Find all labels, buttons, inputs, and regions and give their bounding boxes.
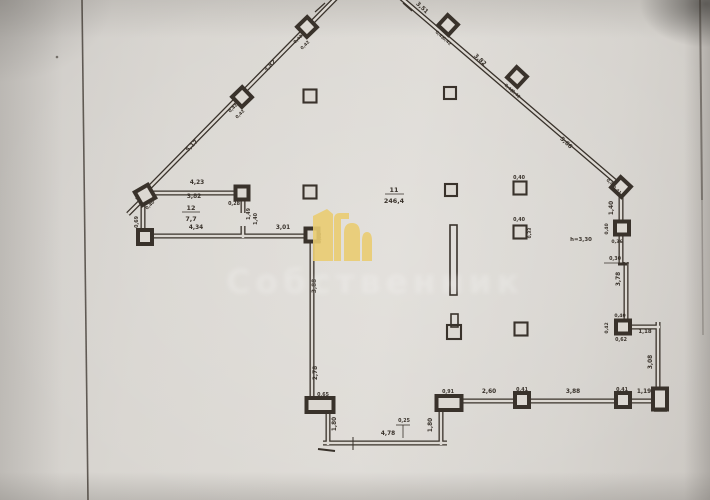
dimension-label: 0,42 <box>604 322 610 333</box>
drawing-line <box>700 0 702 200</box>
wall-pier <box>616 321 630 334</box>
column <box>514 182 527 195</box>
dimension-label: h=3,30 <box>570 237 592 243</box>
column <box>444 87 456 99</box>
wall-pier <box>616 393 630 407</box>
paper-speck <box>56 56 59 59</box>
drawing-line <box>318 449 335 451</box>
dimension-label: 0,41 <box>616 387 628 393</box>
dimension-label: 7,7 <box>185 215 196 223</box>
drawing-line <box>702 200 703 335</box>
dimension-label: 246,4 <box>384 197 405 205</box>
dimension-label: 2,78 <box>313 366 319 380</box>
dimension-label: 1,19 <box>637 389 651 395</box>
dimension-label: 0,42 <box>441 35 453 47</box>
wall-pier <box>615 222 629 235</box>
dimension-label: 4,34 <box>189 225 203 231</box>
dimension-label: 3,82 <box>187 194 201 200</box>
dimension-label: 1,18 <box>638 329 652 335</box>
column <box>445 184 457 196</box>
dimension-label: 0,41 <box>516 387 528 393</box>
dimension-label: 2,60 <box>482 389 496 395</box>
dimension-label: 0,33 <box>527 228 533 239</box>
dimension-label: 0,40 <box>513 175 525 181</box>
dimension-label: 1,49 <box>246 207 252 219</box>
logo-tower-tall <box>344 223 360 261</box>
dimension-label: 1,40 <box>609 201 615 215</box>
watermark-logo <box>313 209 372 261</box>
dimension-label: 4,78 <box>381 431 395 437</box>
dimension-label: 1,80 <box>428 418 434 432</box>
shaft-outline <box>450 225 457 295</box>
floor-plan-drawing: 5,173,820,420,420,420,420,403,510,420,42… <box>0 0 710 500</box>
dimension-label: 3,78 <box>616 272 622 286</box>
dimension-label: 0,36 <box>611 239 622 245</box>
dimension-label: 3,88 <box>312 279 318 293</box>
wall-pier <box>515 393 529 407</box>
dimension-label: 3,88 <box>566 389 580 395</box>
drawing-line <box>82 0 88 500</box>
dimension-label: 0,69 <box>134 215 140 227</box>
dimension-label: 3,01 <box>276 225 290 231</box>
logo-tower-short <box>362 232 372 261</box>
dimension-label: 0,40 <box>614 313 625 319</box>
dimension-label: 1,40 <box>253 212 259 224</box>
dimension-label: 0,40 <box>604 223 610 234</box>
dimension-label: 0,25 <box>398 418 410 424</box>
dimension-label: 0,40 <box>513 217 525 223</box>
dimension-label: 11 <box>390 186 399 194</box>
wall-pier <box>437 396 462 410</box>
dimension-label: 12 <box>187 204 196 212</box>
dimension-label: 4,23 <box>190 180 204 186</box>
column <box>515 323 528 336</box>
wall-pier <box>307 398 334 412</box>
dimension-label: 0,65 <box>317 392 329 398</box>
dimension-label: 1,80 <box>332 417 338 431</box>
dimension-label: 0,62 <box>615 337 627 343</box>
dimension-label: 3,82 <box>263 59 277 73</box>
dimension-label: 5,17 <box>185 139 199 153</box>
dimension-label: 5,66 <box>558 136 573 150</box>
floor-plan-photo: 5,173,820,420,420,420,420,403,510,420,42… <box>0 0 710 500</box>
logo-building-slab <box>313 209 333 261</box>
column <box>514 226 527 239</box>
plan-geometry: 5,173,820,420,420,420,420,403,510,420,42… <box>56 0 703 500</box>
dimension-label: 0,42 <box>299 39 311 51</box>
dimension-label: 3,08 <box>648 355 654 369</box>
dimension-label: 0,91 <box>442 389 454 395</box>
dimension-label: 0,30 <box>609 256 621 262</box>
dimension-label: 0,42 <box>234 108 246 120</box>
column <box>304 90 317 103</box>
column <box>304 186 317 199</box>
wall-pier <box>653 389 667 410</box>
wall-pier <box>507 67 527 87</box>
wall-pier <box>138 230 152 244</box>
dimension-label: 0,28 <box>228 201 240 207</box>
wall-pier <box>236 187 249 200</box>
